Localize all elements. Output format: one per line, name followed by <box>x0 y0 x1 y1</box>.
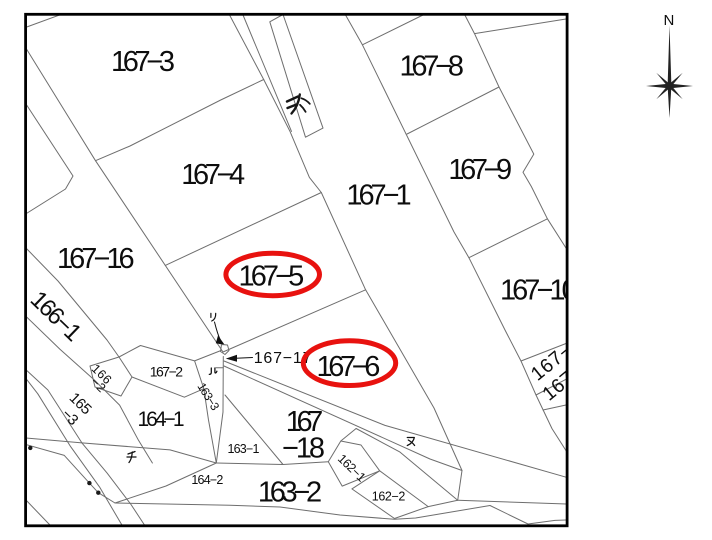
svg-text:164−2: 164−2 <box>191 473 223 487</box>
svg-text:167−3: 167−3 <box>111 46 175 78</box>
svg-text:167−8: 167−8 <box>400 50 465 82</box>
svg-text:163−3: 163−3 <box>194 380 222 413</box>
svg-text:−18: −18 <box>282 432 325 464</box>
svg-text:167−4: 167−4 <box>181 159 245 191</box>
svg-text:167−5: 167−5 <box>239 261 305 293</box>
svg-text:163−2: 163−2 <box>258 477 322 509</box>
svg-text:163−1: 163−1 <box>228 442 260 456</box>
svg-text:167−2: 167−2 <box>150 363 184 379</box>
svg-text:166−1: 166−1 <box>25 286 87 347</box>
svg-text:N: N <box>664 12 675 29</box>
svg-text:162−2: 162−2 <box>372 490 406 504</box>
svg-text:162−1: 162−1 <box>335 452 368 485</box>
svg-text:167−1: 167−1 <box>346 180 411 212</box>
svg-text:164−1: 164−1 <box>138 408 185 431</box>
svg-text:167−6: 167−6 <box>317 351 381 383</box>
svg-text:167−9: 167−9 <box>448 154 512 186</box>
svg-text:167−16: 167−16 <box>57 243 135 275</box>
